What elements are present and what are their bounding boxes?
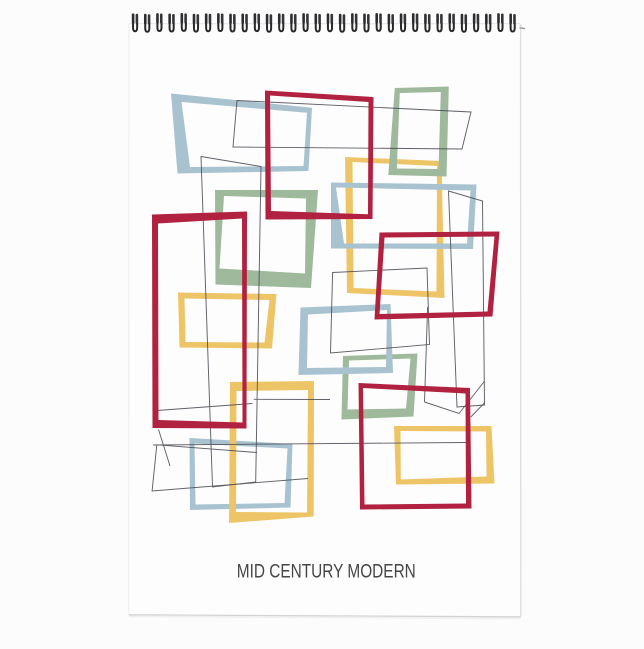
svg-text:MID CENTURY MODERN: MID CENTURY MODERN [237, 562, 416, 583]
